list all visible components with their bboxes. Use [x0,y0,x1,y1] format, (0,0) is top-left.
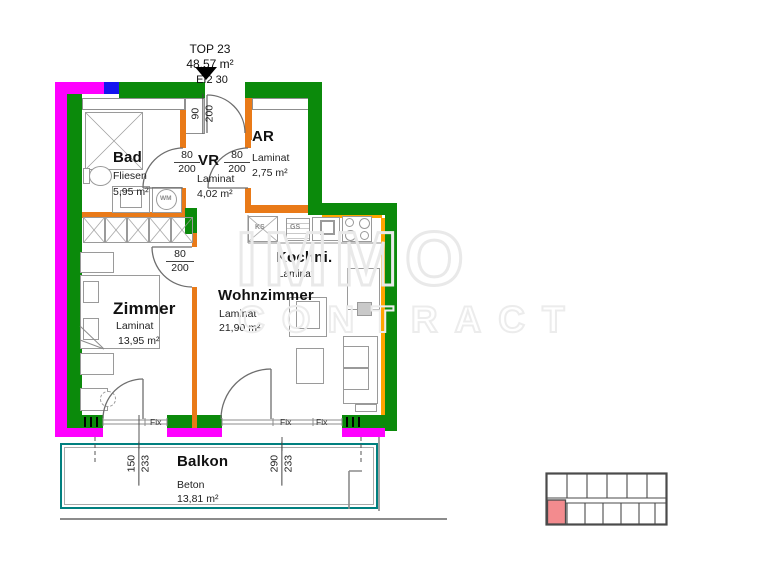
dim-bad-door-width: 80 [174,149,200,163]
washing-machine-label: WM [160,195,172,202]
dim-balcony-door-wohnzimmer: 290 233 [268,442,295,486]
room-ar-name: AR [252,128,274,145]
dim-bad-door: 80 200 [174,149,200,176]
room-balkon-floor: Beton [177,479,204,491]
window-fix-label-2: Fix [280,417,291,427]
dim-ar-door-height: 200 [224,163,250,176]
room-zimmer-floor: Laminat [116,320,153,332]
dim-entrance-height: 200 [204,94,217,134]
dim-balcony-door-zimmer: 150 233 [125,442,152,486]
balcony-divider [349,437,379,511]
window-fix-label-1: Fix [150,417,161,427]
entrance-marker-icon [195,67,217,80]
dim-zimmer-door-height: 200 [166,262,194,275]
dim-zimmer-door-width: 80 [166,248,194,262]
room-vr-area: 4,02 m² [197,188,233,200]
watermark-line2: CONTRACT [238,301,582,338]
room-ar-floor: Laminat [252,152,289,164]
dim-ar-door-width: 80 [224,149,250,163]
dim-zimmer-door: 80 200 [166,248,194,275]
room-bad-name: Bad [113,149,142,166]
dim-entrance-width: 90 [189,94,203,134]
window-fix-label-3: Fix [316,417,327,427]
room-ar-area: 2,75 m² [252,167,288,179]
room-zimmer-name: Zimmer [113,299,176,319]
room-zimmer-area: 13,95 m² [118,335,159,347]
watermark-line1: IMMO [236,222,471,298]
dim-balcony-wz-width: 290 [268,442,282,486]
dim-ar-door: 80 200 [224,149,250,176]
room-bad-area: 5,95 m² [113,186,149,198]
floorplan-canvas: TOP 23 48,57 m² EI2 30 WM [0,0,770,571]
dim-entrance-door: 90 200 [189,94,216,134]
dim-balcony-zimmer-width: 150 [125,442,139,486]
dim-balcony-wz-height: 233 [283,442,296,486]
room-bad-floor: Fliesen [113,170,147,182]
unit-label: TOP 23 [160,42,260,56]
room-balkon-area: 13,81 m² [177,493,218,505]
dim-bad-door-height: 200 [174,163,200,176]
room-vr-name: VR [198,152,219,169]
balcony-door-zimmer-arc [103,379,143,419]
room-balkon-name: Balkon [177,453,228,470]
dim-balcony-zimmer-height: 233 [140,442,153,486]
balcony-door-wohnzimmer-arc [221,369,271,419]
bed-fold-line [80,326,104,349]
